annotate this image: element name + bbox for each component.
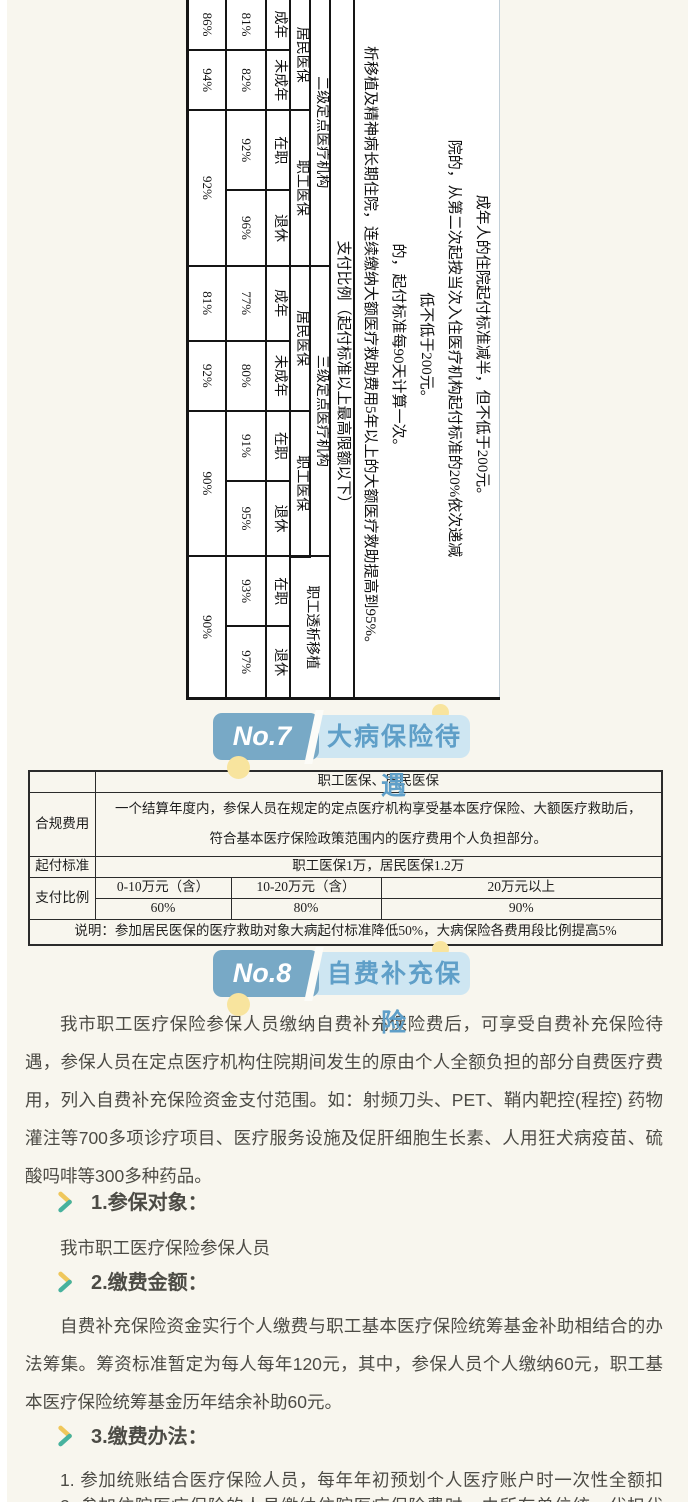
chevron-right-icon xyxy=(57,1271,75,1302)
tier-label: 20万元以上 xyxy=(381,877,662,898)
heading-payment-amount: 2.缴费金额： xyxy=(57,1268,208,1298)
heading-enroll-target: 1.参保对象： xyxy=(57,1188,208,1218)
ratio-value: 97% xyxy=(227,626,267,698)
decorative-dot xyxy=(227,756,250,779)
chevron-right-icon xyxy=(57,1191,75,1222)
group-label: 未成年 xyxy=(267,341,291,411)
ratio-value: 92% xyxy=(188,110,227,265)
ratio-value: 81% xyxy=(227,0,267,50)
employee-insurance: 职工医保 xyxy=(291,411,311,556)
group-label: 退休 xyxy=(267,481,291,556)
note-line: 院的，从第二次起按当次入住医疗机构起付标准的20%依次递减 xyxy=(440,2,468,695)
ratio-value: 92% xyxy=(227,110,267,190)
group-label: 在职 xyxy=(267,411,291,481)
empty-cell xyxy=(29,771,95,792)
ratio-header-cell: 支付比例（起付标准以上最高限额以下） xyxy=(331,0,355,699)
infographic-page: 成年人的住院起付标准减半，但不低于200元。 院的，从第二次起按当次入住医疗机构… xyxy=(0,0,688,1502)
payment-amount-paragraph: 自费补充保险资金实行个人缴费与职工基本医疗保险统筹基金补助相结合的办法筹集。筹资… xyxy=(25,1307,663,1425)
group-label: 成年 xyxy=(267,266,291,341)
rotated-benefit-table: 成年人的住院起付标准减半，但不低于200元。 院的，从第二次起按当次入住医疗机构… xyxy=(186,0,500,700)
resident-insurance: 居民医保 xyxy=(291,266,311,411)
section7-banner: No.7 大病保险待遇 xyxy=(213,713,470,760)
ratio-value: 86% xyxy=(188,0,227,50)
cost-line: 一个结算年度内，参保人员在规定的定点医疗机构享受基本医疗保险、大额医疗救助后， xyxy=(96,794,662,824)
heading-text: 3.缴费办法： xyxy=(91,1426,208,1448)
payment-ratio-table: 成年人的住院起付标准减半，但不低于200元。 院的，从第二次起按当次入住医疗机构… xyxy=(186,0,500,700)
note-line: 成年人的住院起付标准减半，但不低于200元。 xyxy=(468,2,496,695)
tier-rate: 80% xyxy=(231,898,381,919)
group-label: 成年 xyxy=(267,0,291,50)
heading-payment-method: 3.缴费办法： xyxy=(57,1422,208,1452)
note-line: 析移植及精神病长期住院，连续缴纳大额医疗救助费用5年以上的大额医疗救助提高到95… xyxy=(356,2,384,695)
group-label: 未成年 xyxy=(267,50,291,110)
ratio-value: 81% xyxy=(188,266,227,341)
employee-insurance: 职工医保 xyxy=(291,110,311,265)
note-line: 的，起付标准每90天计算一次。 xyxy=(384,2,412,695)
table-notes-cell: 成年人的住院起付标准减半，但不低于200元。 院的，从第二次起按当次入住医疗机构… xyxy=(355,0,500,699)
section-number-badge: No.8 xyxy=(213,950,311,997)
ratio-value: 90% xyxy=(188,556,227,698)
cost-line: 符合基本医疗保险政策范围内的医疗费用个人负担部分。 xyxy=(96,824,662,854)
group-label: 退休 xyxy=(267,190,291,265)
enroll-target-paragraph: 我市职工医疗保险参保人员 xyxy=(25,1229,663,1267)
hospital-level-3: 三级定点医疗机构 xyxy=(311,266,331,557)
heading-text: 1.参保对象： xyxy=(91,1192,208,1214)
serious-illness-table: 职工医保、居民医保 合规费用 一个结算年度内，参保人员在规定的定点医疗机构享受基… xyxy=(28,770,663,946)
ratio-value: 90% xyxy=(188,411,227,556)
row-label-cost: 合规费用 xyxy=(29,792,95,856)
table-note: 说明：参加居民医保的医疗救助对象大病起付标准降低50%，大病保险各费用段比例提高… xyxy=(29,919,662,945)
page-left-margin xyxy=(0,0,7,1502)
ratio-value: 92% xyxy=(188,341,227,411)
decorative-dot xyxy=(227,993,250,1016)
group-label: 退休 xyxy=(267,626,291,698)
tier-label: 0-10万元（含） xyxy=(95,877,231,898)
chevron-right-icon xyxy=(57,1425,75,1456)
ratio-value: 95% xyxy=(227,481,267,556)
row-label-deductible: 起付标准 xyxy=(29,856,95,877)
ratio-value: 80% xyxy=(227,341,267,411)
resident-insurance: 居民医保 xyxy=(291,0,311,110)
ratio-value: 96% xyxy=(227,190,267,265)
tier-rate: 90% xyxy=(381,898,662,919)
hospital-level-2: 二级定点医疗机构 xyxy=(311,0,331,266)
insurance-scope-header: 职工医保、居民医保 xyxy=(95,771,662,792)
group-label: 在职 xyxy=(267,110,291,190)
ratio-value: 77% xyxy=(227,266,267,341)
section-title: 自费补充保险 xyxy=(319,950,470,997)
row-label-ratio: 支付比例 xyxy=(29,877,95,919)
ratio-value: 93% xyxy=(227,556,267,626)
section8-banner: No.8 自费补充保险 xyxy=(213,950,470,997)
section-title: 大病保险待遇 xyxy=(319,713,470,760)
dialysis-transplant: 职工透析移植 xyxy=(291,556,331,698)
tier-rate: 60% xyxy=(95,898,231,919)
section-number-badge: No.7 xyxy=(213,713,311,760)
payment-method-item-2-partial: 2. 参加住院医疗保险的人员缴纳住院医疗保险费时，由所在单位统一代扣代缴。 xyxy=(25,1487,663,1502)
group-label: 在职 xyxy=(267,556,291,626)
intro-paragraph: 我市职工医疗保险参保人员缴纳自费补充保险费后，可享受自费补充保险待遇，参保人员在… xyxy=(25,1005,663,1200)
ratio-value: 82% xyxy=(227,50,267,110)
heading-text: 2.缴费金额： xyxy=(91,1272,208,1294)
tier-label: 10-20万元（含） xyxy=(231,877,381,898)
ratio-value: 94% xyxy=(188,50,227,110)
note-line: 低不低于200元。 xyxy=(412,2,440,695)
ratio-value: 91% xyxy=(227,411,267,481)
deductible-value: 职工医保1万，居民医保1.2万 xyxy=(95,856,662,877)
cost-description-cell: 一个结算年度内，参保人员在规定的定点医疗机构享受基本医疗保险、大额医疗救助后， … xyxy=(95,792,662,856)
